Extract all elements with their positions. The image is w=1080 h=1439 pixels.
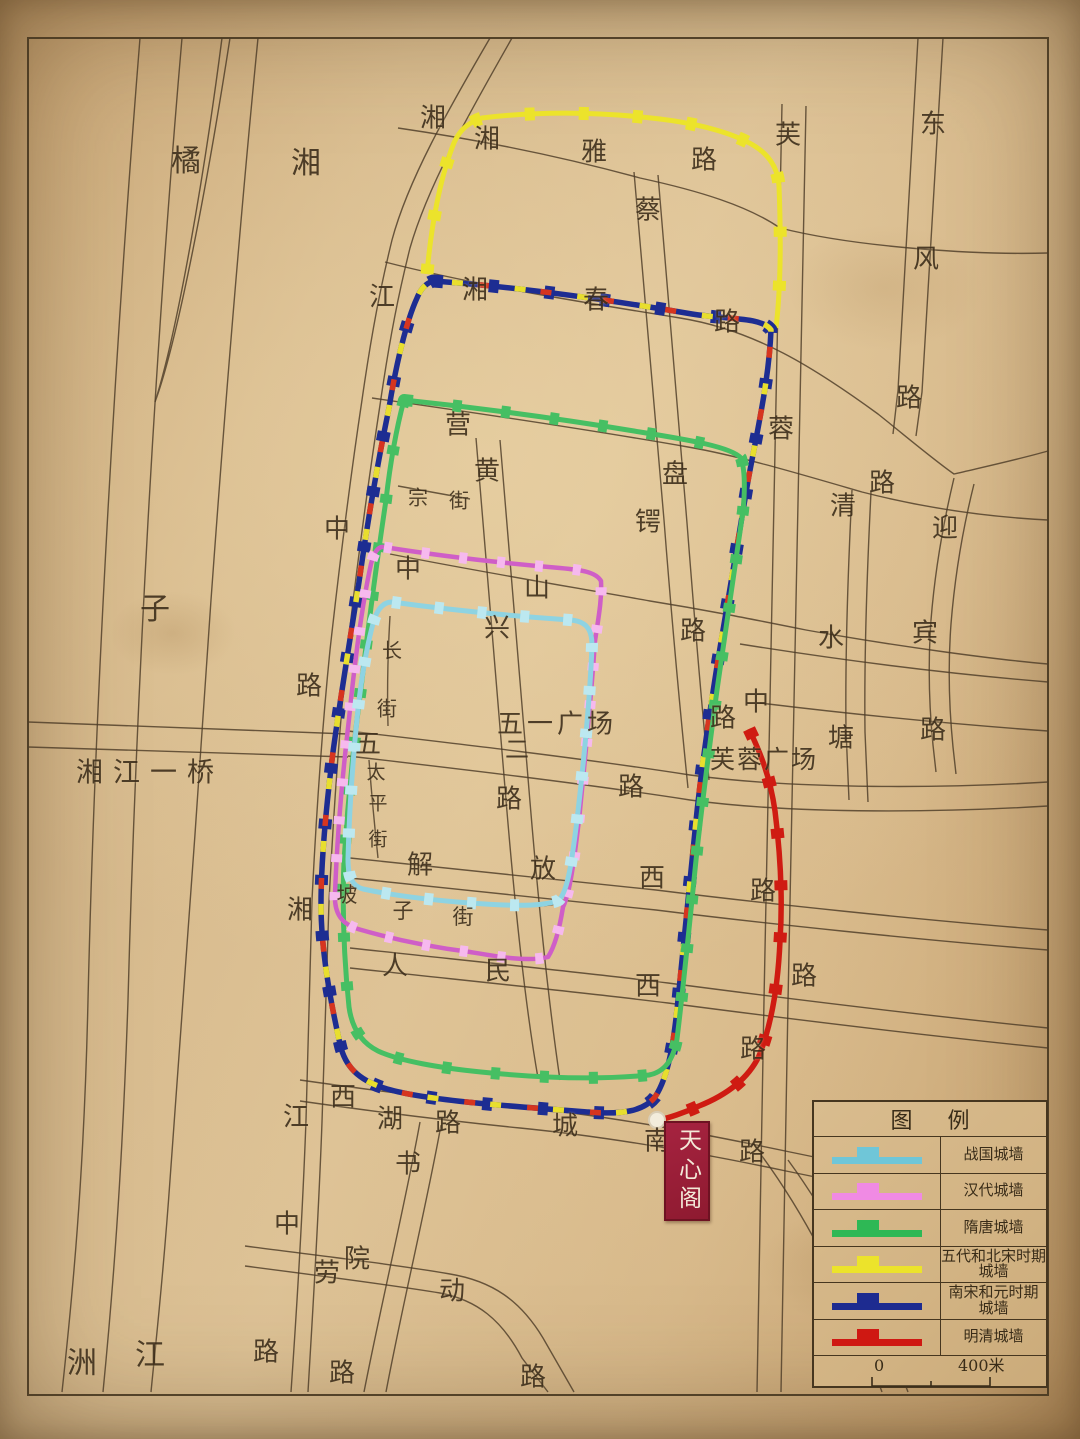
- legend-rows: 战国城墙汉代城墙隋唐城墙五代和北宋时期城墙南宋和元时期城墙明清城墙: [814, 1137, 1046, 1356]
- legend-label: 汉代城墙: [941, 1174, 1046, 1210]
- legend-row-1: 汉代城墙: [814, 1174, 1046, 1211]
- road-line: [372, 398, 1048, 520]
- legend-symbol: [814, 1174, 941, 1210]
- road-line: [658, 175, 709, 780]
- road-line: [62, 38, 140, 1392]
- road-line: [846, 490, 852, 800]
- road-line: [350, 948, 1048, 1028]
- legend-row-4: 南宋和元时期城墙: [814, 1283, 1046, 1320]
- tianxin-pavilion-label: 天心阁: [676, 1128, 699, 1215]
- tianxin-pavilion-point: [649, 1112, 665, 1128]
- road-line: [949, 484, 974, 774]
- road-line: [369, 760, 378, 858]
- legend-label: 南宋和元时期城墙: [941, 1283, 1046, 1319]
- wall-sui-tang: [343, 400, 744, 1078]
- road-line: [760, 703, 1048, 731]
- scale-bar-graphic: 0 400米: [830, 1357, 1030, 1391]
- road-line: [500, 440, 560, 1080]
- legend-box: 图 例 战国城墙汉代城墙隋唐城墙五代和北宋时期城墙南宋和元时期城墙明清城墙 0 …: [812, 1100, 1048, 1388]
- road-line: [634, 172, 688, 788]
- road-line: [151, 38, 258, 1392]
- road-line: [781, 106, 806, 1392]
- road-line: [245, 1266, 548, 1392]
- legend-label: 隋唐城墙: [941, 1210, 1046, 1246]
- road-line: [350, 968, 1048, 1048]
- road-line: [386, 1125, 441, 1392]
- legend-label: 明清城墙: [941, 1320, 1046, 1356]
- map-photo: { "legend": { "title": "图 例", "items": […: [0, 0, 1080, 1439]
- road-line: [398, 128, 1048, 253]
- scale-max: 400米: [958, 1357, 1005, 1375]
- road-line: [398, 486, 470, 499]
- legend-symbol: [814, 1210, 941, 1246]
- road-line: [916, 38, 943, 436]
- road-line: [865, 492, 871, 802]
- road-line: [155, 38, 230, 402]
- legend-symbol: [814, 1247, 941, 1283]
- road-line: [740, 644, 1048, 682]
- legend-symbol: [814, 1137, 941, 1173]
- road-line: [364, 1122, 420, 1392]
- road-line: [350, 858, 1048, 930]
- road-line: [28, 747, 348, 757]
- legend-row-3: 五代和北宋时期城墙: [814, 1247, 1046, 1284]
- road-line: [388, 616, 390, 726]
- scale-bar: 0 400米: [814, 1356, 1046, 1391]
- road-line: [350, 878, 1048, 950]
- scale-zero: 0: [874, 1357, 884, 1375]
- legend-row-0: 战国城墙: [814, 1137, 1046, 1174]
- legend-row-5: 明清城墙: [814, 1320, 1046, 1357]
- road-line: [245, 1246, 574, 1392]
- road-line: [893, 38, 918, 434]
- legend-row-2: 隋唐城墙: [814, 1210, 1046, 1247]
- scale-bracket: [872, 1377, 990, 1386]
- legend-label: 战国城墙: [941, 1137, 1046, 1173]
- wall-warring-states: [348, 602, 592, 905]
- road-line: [348, 731, 1048, 786]
- road-line: [28, 722, 348, 734]
- tianxin-pavilion-badge: 天心阁: [664, 1121, 710, 1221]
- legend-title: 图 例: [814, 1102, 1046, 1137]
- legend-symbol: [814, 1320, 941, 1356]
- road-line: [385, 262, 1048, 474]
- road-line: [291, 38, 490, 1392]
- road-line: [103, 38, 182, 1392]
- legend-symbol: [814, 1283, 941, 1319]
- legend-label: 五代和北宋时期城墙: [941, 1247, 1046, 1283]
